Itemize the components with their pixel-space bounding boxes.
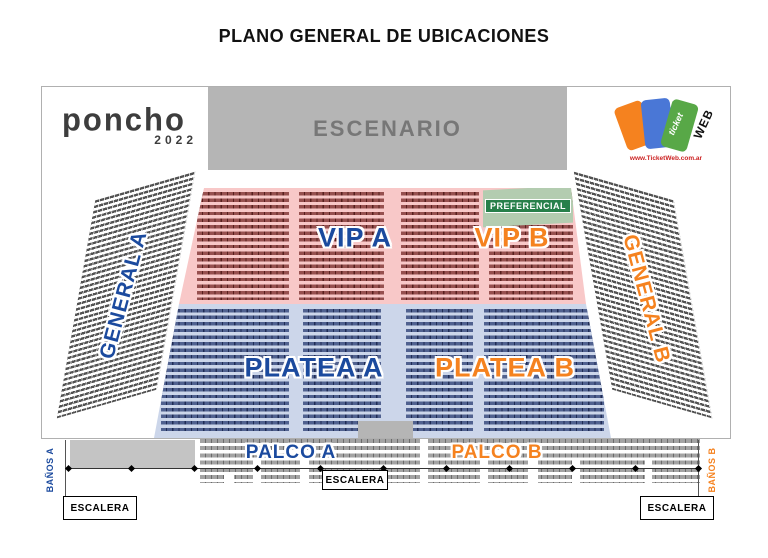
vip-b-label: VIP B	[474, 223, 549, 253]
stairs-right: ESCALERA	[640, 496, 714, 520]
ticketweb-logo: ticket WEB www.TicketWeb.com.ar	[616, 99, 716, 161]
stairs-left: ESCALERA	[63, 496, 137, 520]
stage: ESCENARIO	[208, 87, 567, 170]
vip-a-label: VIP A	[318, 223, 392, 253]
palco-a-label: PALCO A	[246, 442, 336, 463]
platea-center-platform	[358, 421, 413, 438]
seating-map-page: PLANO GENERAL DE UBICACIONES poncho 2022…	[0, 0, 768, 558]
poncho-logo-text: poncho	[62, 104, 197, 136]
platea-area: PLATEA A PLATEA B	[141, 304, 626, 438]
palco-b-label: PALCO B	[451, 442, 542, 463]
stage-label: ESCENARIO	[313, 116, 462, 142]
aisle-gap	[224, 472, 234, 484]
vip-area: PREFERENCIAL VIP A VIP B	[171, 188, 596, 304]
page-title: PLANO GENERAL DE UBICACIONES	[0, 26, 768, 47]
diamond-marker	[191, 465, 198, 472]
stairs-center: ESCALERA	[322, 470, 388, 490]
platea-a-label: PLATEA A	[245, 353, 384, 383]
poncho-logo: poncho 2022	[62, 105, 197, 147]
preferencial-label: PREFERENCIAL	[485, 199, 571, 213]
ticketweb-url: www.TicketWeb.com.ar	[616, 155, 716, 162]
platea-b-label: PLATEA B	[435, 353, 575, 383]
left-platform	[70, 440, 195, 468]
vip-b-seat-block[interactable]	[401, 192, 479, 300]
banos-a-label: BAÑOS A	[43, 442, 57, 498]
banos-b-label: BAÑOS B	[705, 442, 719, 498]
venue-map: poncho 2022 ESCENARIO ticket WEB www.Tic…	[41, 86, 731, 439]
aisle-gap	[645, 458, 652, 484]
vip-a-seat-block[interactable]	[197, 192, 289, 300]
